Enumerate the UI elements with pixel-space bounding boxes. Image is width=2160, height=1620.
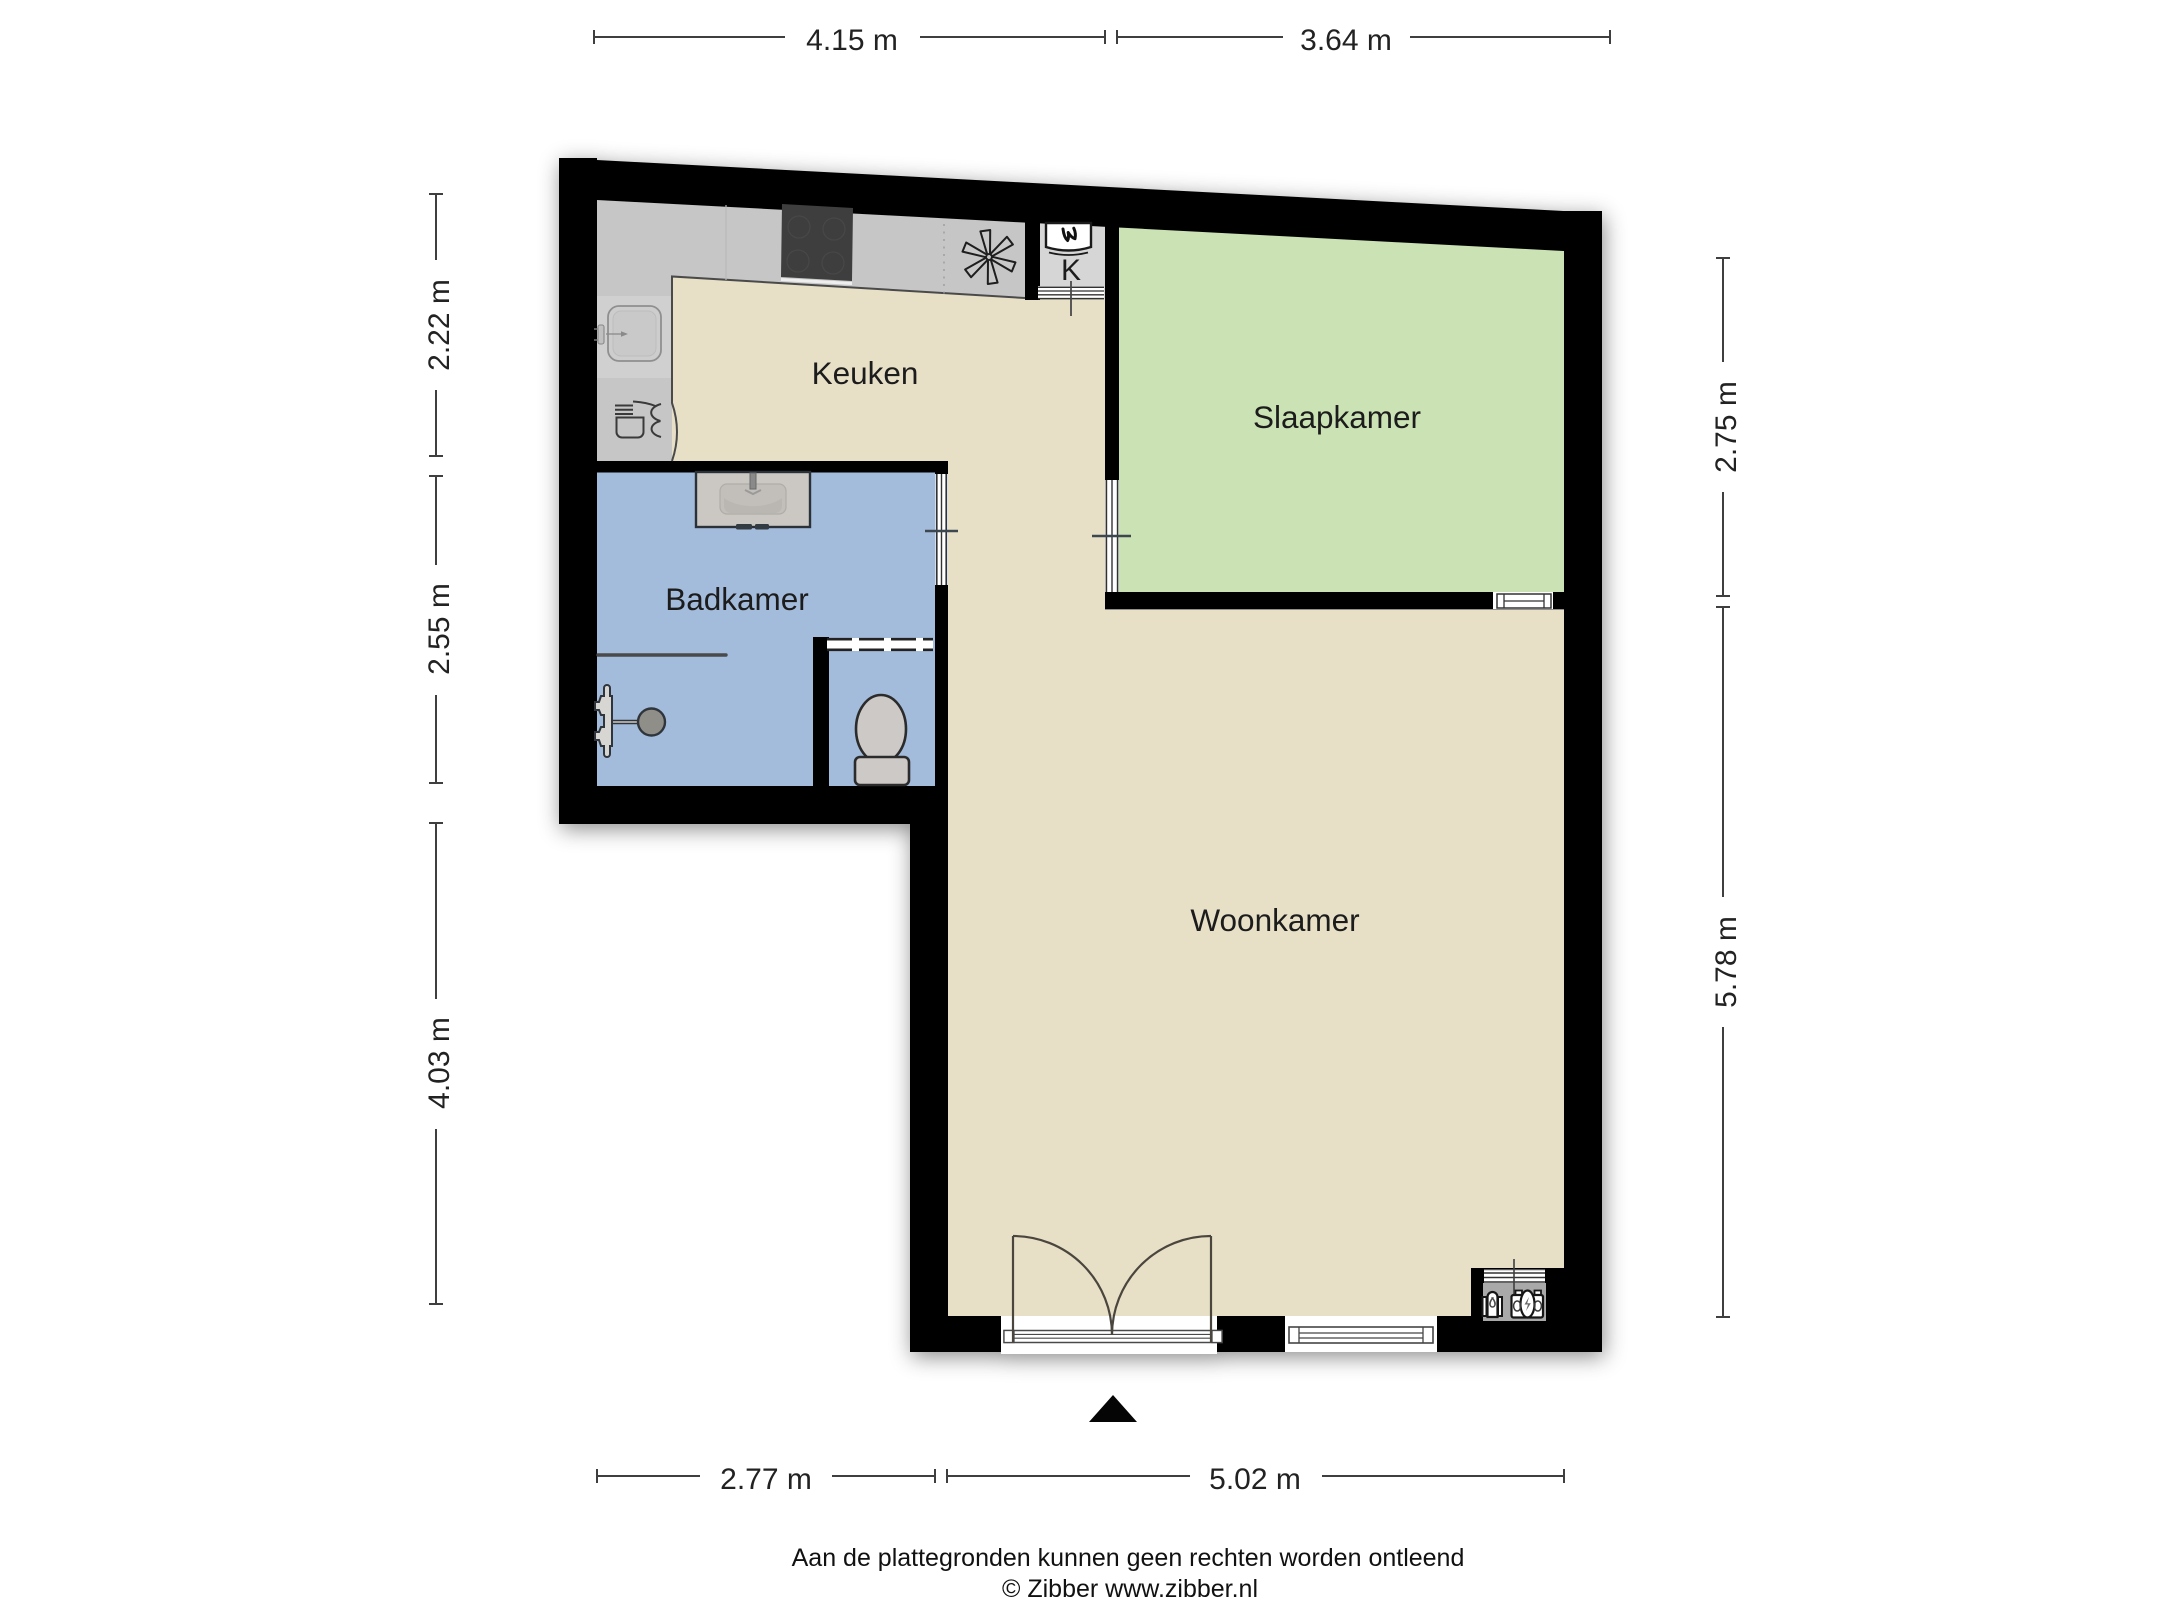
svg-text:Slaapkamer: Slaapkamer (1253, 399, 1421, 435)
svg-text:4.15 m: 4.15 m (806, 24, 898, 57)
svg-text:4.03 m: 4.03 m (423, 1017, 456, 1109)
svg-text:2.75 m: 2.75 m (1710, 381, 1743, 473)
svg-text:2.77 m: 2.77 m (720, 1463, 812, 1496)
svg-text:5.78 m: 5.78 m (1710, 916, 1743, 1008)
svg-text:Aan de plattegronden kunnen ge: Aan de plattegronden kunnen geen rechten… (792, 1544, 1465, 1572)
svg-text:Woonkamer: Woonkamer (1190, 902, 1359, 938)
svg-text:5.02 m: 5.02 m (1209, 1463, 1301, 1496)
svg-text:3.64 m: 3.64 m (1300, 24, 1392, 57)
svg-text:K: K (1061, 254, 1081, 287)
svg-text:Badkamer: Badkamer (665, 581, 809, 617)
svg-text:2.22 m: 2.22 m (423, 279, 456, 371)
svg-text:Keuken: Keuken (812, 355, 919, 391)
svg-text:2.55 m: 2.55 m (423, 583, 456, 675)
svg-text:© Zibber www.zibber.nl: © Zibber www.zibber.nl (1002, 1575, 1258, 1603)
